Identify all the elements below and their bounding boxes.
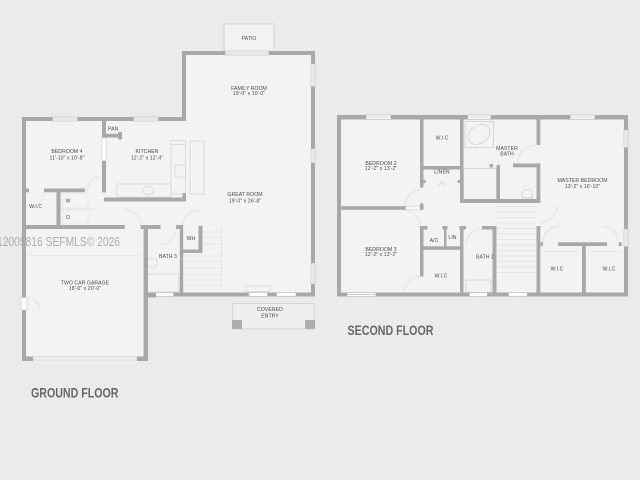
svg-text:19'-0" x 26'-8": 19'-0" x 26'-8"	[229, 199, 261, 205]
svg-text:MASTER BEDROOM: MASTER BEDROOM	[557, 178, 607, 184]
svg-text:11'-10" x 10'-8": 11'-10" x 10'-8"	[50, 156, 85, 162]
svg-text:W.I.C: W.I.C	[435, 274, 448, 280]
svg-text:GREAT ROOM: GREAT ROOM	[227, 192, 262, 198]
svg-text:W: W	[66, 198, 71, 204]
svg-text:13'-2" x 16'-10": 13'-2" x 16'-10"	[565, 184, 600, 190]
svg-text:19'-0" x 10'-0": 19'-0" x 10'-0"	[233, 91, 265, 97]
svg-text:D: D	[66, 215, 70, 221]
svg-text:12'-2" x 12'-4": 12'-2" x 12'-4"	[131, 156, 163, 162]
svg-text:COVERED: COVERED	[257, 307, 283, 313]
svg-text:12'-2" x 13'-2": 12'-2" x 13'-2"	[365, 252, 397, 258]
svg-text:W.I.C: W.I.C	[29, 204, 42, 210]
svg-text:18'-0" x 20'-0": 18'-0" x 20'-0"	[69, 286, 101, 292]
svg-text:12005816 SEFMLS© 2026: 12005816 SEFMLS© 2026	[0, 235, 120, 249]
svg-text:GROUND FLOOR: GROUND FLOOR	[31, 385, 119, 401]
svg-text:LINEN: LINEN	[434, 170, 450, 176]
svg-text:PATIO: PATIO	[242, 36, 257, 42]
svg-text:WH: WH	[187, 236, 196, 242]
svg-text:W.I.C: W.I.C	[551, 267, 564, 273]
svg-text:A/C: A/C	[430, 238, 439, 244]
svg-text:KITCHEN: KITCHEN	[136, 149, 159, 155]
svg-text:BATH 2: BATH 2	[476, 255, 494, 261]
svg-text:ENTRY: ENTRY	[261, 314, 279, 320]
svg-text:PAN: PAN	[108, 127, 119, 133]
svg-text:W.I.C: W.I.C	[436, 136, 449, 142]
svg-text:W.I.C: W.I.C	[603, 267, 616, 273]
svg-text:BATH 3: BATH 3	[159, 254, 177, 260]
svg-text:SECOND FLOOR: SECOND FLOOR	[348, 322, 434, 338]
svg-text:12'-2" x 13'-2": 12'-2" x 13'-2"	[365, 166, 397, 172]
svg-text:LIN: LIN	[448, 235, 456, 241]
svg-text:BEDROOM 4: BEDROOM 4	[51, 149, 82, 155]
svg-text:BATH: BATH	[500, 151, 514, 157]
